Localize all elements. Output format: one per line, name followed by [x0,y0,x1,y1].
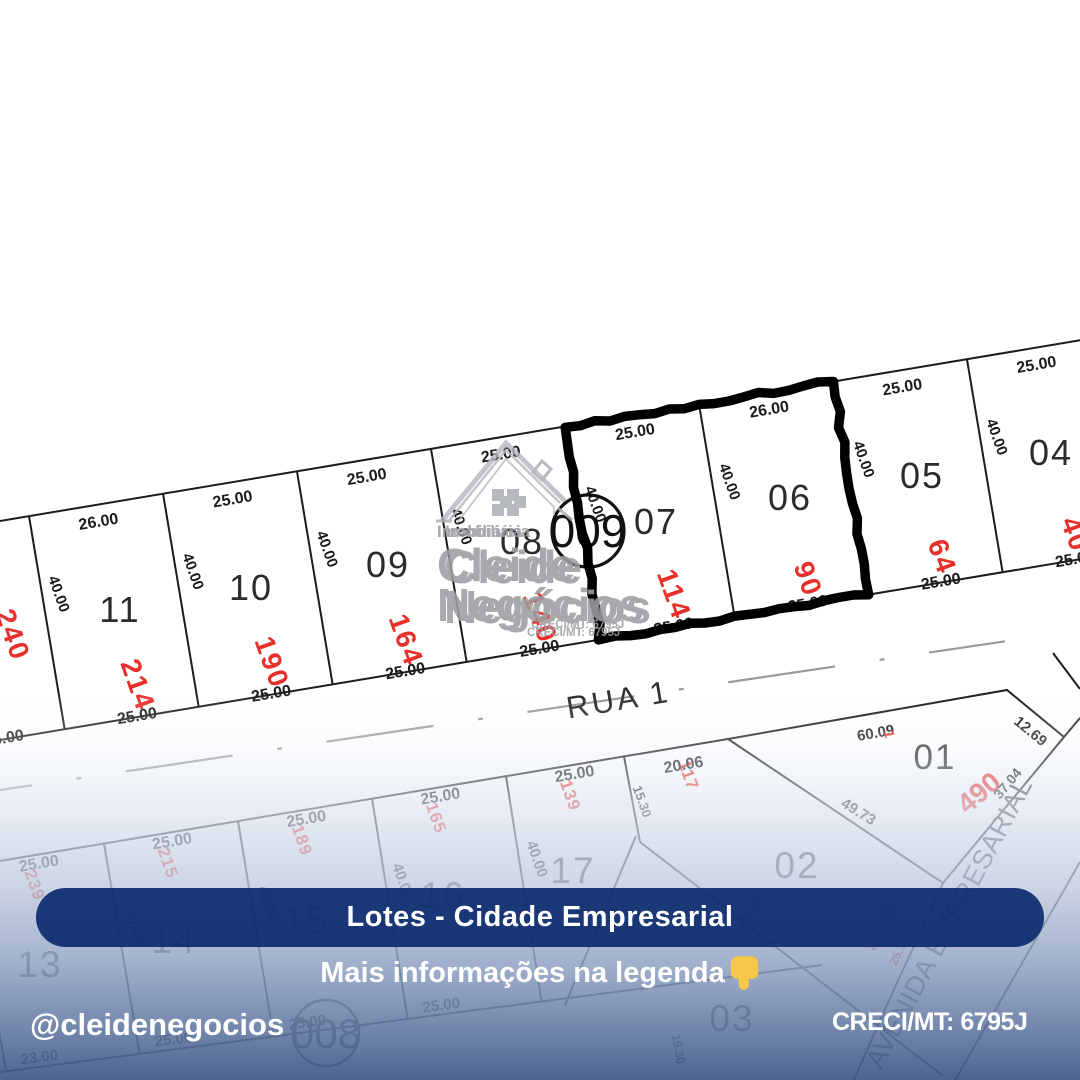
svg-text:40: 40 [1055,513,1080,556]
svg-text:07: 07 [634,501,678,542]
svg-text:26.00: 26.00 [77,511,119,534]
svg-text:10: 10 [229,567,273,608]
svg-text:40.00: 40.00 [44,574,73,615]
svg-text:40.00: 40.00 [178,551,207,592]
svg-text:CRECI/MT: 6795J: CRECI/MT: 6795J [527,627,620,639]
svg-text:04: 04 [1029,432,1073,473]
svg-text:164: 164 [383,610,430,670]
svg-text:190: 190 [249,632,296,692]
svg-text:40.00: 40.00 [313,529,342,570]
svg-text:25.00: 25.00 [346,466,388,489]
svg-text:25.00: 25.00 [881,376,923,399]
svg-text:25.00: 25.00 [212,488,254,511]
svg-text:06: 06 [768,477,812,518]
svg-text:25.00: 25.00 [1015,354,1057,377]
svg-text:05: 05 [900,455,944,496]
svg-text:25.00: 25.00 [614,421,656,444]
svg-text:40.00: 40.00 [982,417,1011,458]
svg-text:40.00: 40.00 [715,461,744,502]
svg-text:26.00: 26.00 [748,398,790,421]
svg-text:114: 114 [651,565,697,624]
svg-text:240: 240 [0,605,36,665]
svg-text:40.00: 40.00 [849,439,878,480]
svg-text:11: 11 [99,589,140,630]
svg-text:09: 09 [366,544,410,585]
